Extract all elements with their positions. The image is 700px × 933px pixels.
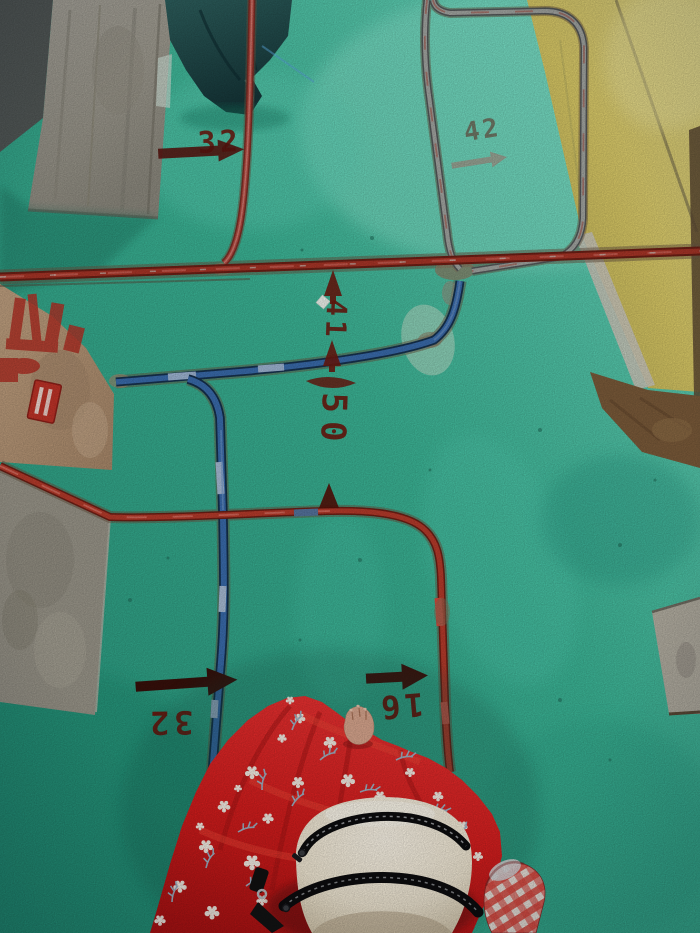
- construction-floor-photo: 32 42 41 50 32 16: [0, 0, 700, 933]
- vignette: [0, 0, 700, 933]
